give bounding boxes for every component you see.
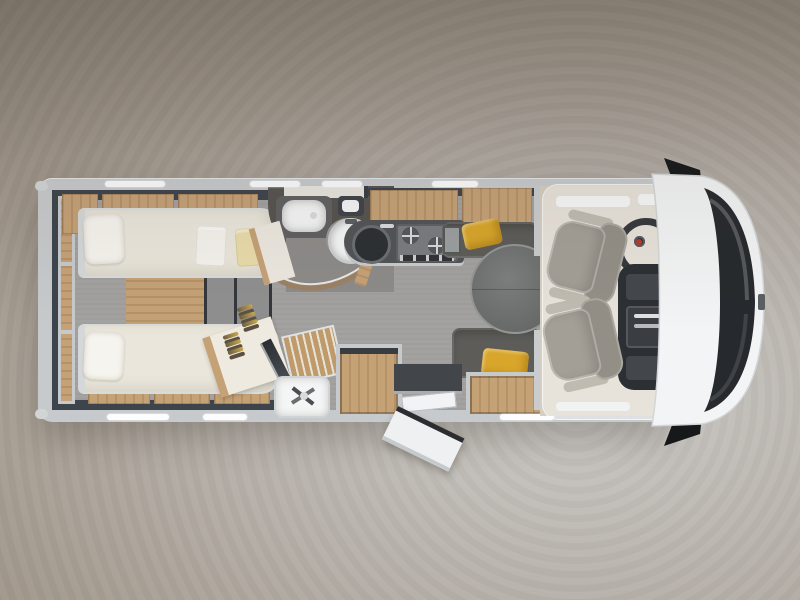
entry-door-open [382,406,465,472]
hanger-icon [242,319,258,328]
pillow [83,213,126,265]
sun-visor [556,196,630,207]
pillow [83,331,125,381]
hanger-icon [225,339,241,348]
taillight-cap [35,181,48,191]
floorplan-stage [0,0,800,600]
hanger-icon [222,331,238,340]
taillight-cap [35,409,48,419]
wardrobe-edge [340,348,398,354]
towel [195,225,227,267]
shelf-divider [58,330,75,334]
entrance [392,362,502,462]
window-strip [203,414,247,420]
window-strip [107,414,169,420]
faucet-icon [310,212,317,219]
drain-icon [300,392,308,400]
front-end [628,148,800,460]
window-strip [250,181,300,187]
faucet-icon [380,224,394,228]
window-strip [322,181,362,187]
window-strip [432,181,478,187]
shelf-divider [58,262,75,266]
hanger-icon [227,347,243,356]
entry-console [394,364,462,394]
washbasin [282,200,326,232]
bedroom-podium [126,272,206,330]
window-strip [105,181,165,187]
kitchen-sink [352,225,391,264]
magazine-rack [443,226,461,254]
sill-trim [556,402,630,411]
front-badge [758,294,765,310]
shower-tray [274,376,330,418]
midship-lower [208,320,398,420]
entry-step [401,391,456,413]
burner-icon [402,227,419,244]
